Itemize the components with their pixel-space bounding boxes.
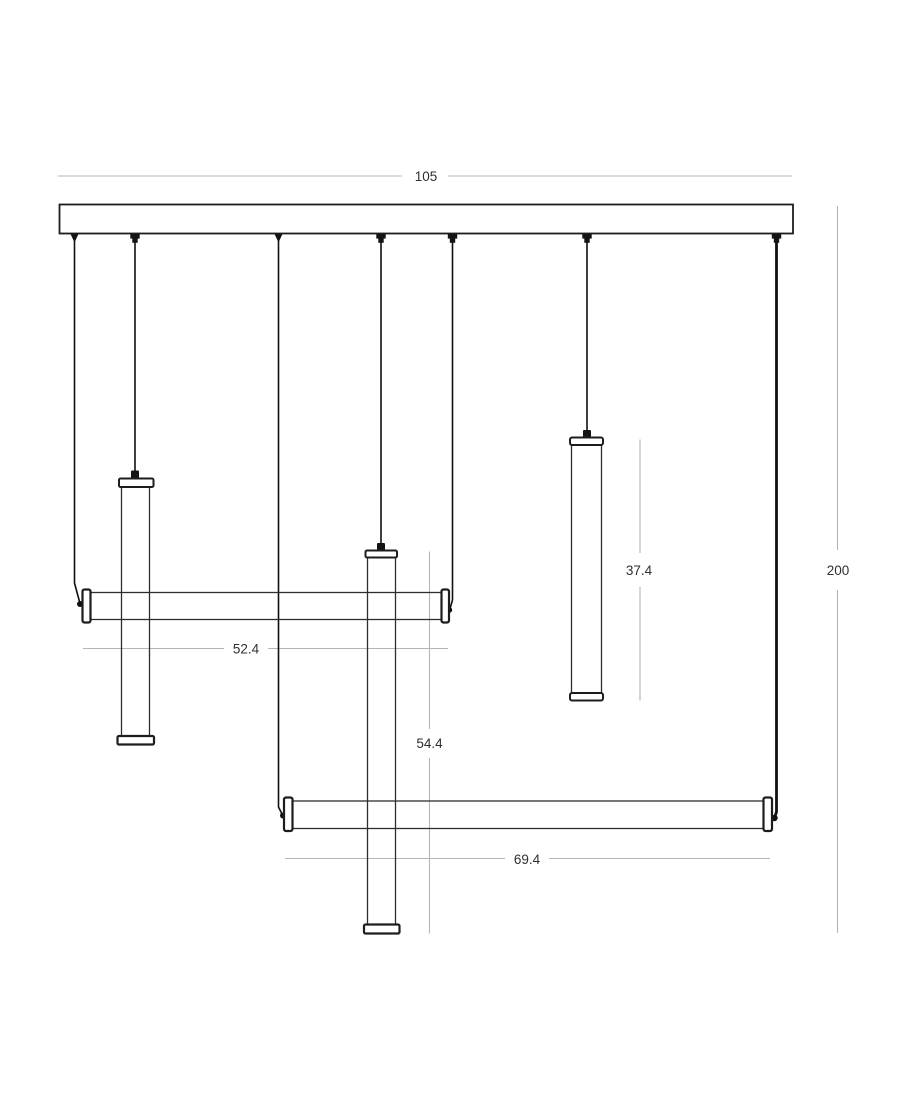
technical-drawing-canvas: 105 200 52.4 54.4 37.4 69.4: [0, 0, 900, 1100]
right-vertical-tube-top-cap: [570, 438, 603, 446]
left-vertical-tube: [118, 479, 155, 745]
suspension-cable-5: [450, 234, 453, 611]
ceiling-canopy-bar: [60, 205, 794, 234]
right-vertical-tube-bottom-cap: [570, 693, 603, 701]
dimension-canopy-length: 105: [58, 169, 792, 184]
lower-horizontal-tube-left-cap: [284, 798, 293, 832]
pendant-light-dimension-drawing: 105 200 52.4 54.4 37.4 69.4: [0, 0, 900, 1100]
lower-horizontal-tube-right-cap: [764, 798, 773, 832]
canopy-mount-connector-7: [772, 234, 781, 243]
canopy-mount-connector-4: [376, 234, 385, 243]
left-vertical-tube-top-cap: [119, 479, 154, 488]
dimension-overall-drop: 200: [827, 206, 850, 933]
dimension-middle-vertical-tube: 54.4: [416, 552, 443, 934]
dimension-lower-horizontal-tube: 69.4: [285, 852, 770, 867]
upper-horizontal-tube-body: [90, 593, 442, 620]
middle-vertical-tube: [364, 551, 400, 934]
canopy-cable-mounts: [71, 234, 782, 243]
upper-horizontal-tube-right-cap: [442, 590, 450, 623]
dim-label-overall-drop: 200: [827, 563, 850, 578]
dim-label-right-vertical-tube: 37.4: [626, 563, 653, 578]
left-vertical-tube-body: [122, 487, 150, 738]
dim-label-middle-vertical-tube: 54.4: [416, 736, 443, 751]
middle-vertical-tube-bottom-cap: [364, 925, 400, 934]
middle-vertical-tube-body: [368, 557, 396, 926]
dimension-right-vertical-tube: 37.4: [626, 440, 653, 701]
dim-label-upper-horizontal-tube: 52.4: [233, 642, 260, 657]
upper-horizontal-tube: [83, 590, 450, 623]
suspension-cable-7: [774, 234, 777, 821]
dim-label-canopy-length: 105: [415, 169, 438, 184]
canopy-mount-connector-1: [71, 234, 79, 243]
right-vertical-tube: [570, 438, 603, 701]
suspension-cables: [75, 234, 778, 822]
middle-vertical-tube-top-cap: [366, 551, 398, 558]
canopy-mount-connector-3: [275, 234, 283, 243]
lower-horizontal-tube-body: [292, 801, 764, 829]
right-vertical-tube-body: [572, 445, 602, 694]
dimension-upper-horizontal-tube: 52.4: [83, 642, 448, 657]
suspension-cable-1: [75, 234, 81, 604]
canopy-mount-connector-6: [582, 234, 591, 243]
canopy-mount-connector-2: [130, 234, 139, 243]
suspension-cable-3: [279, 234, 284, 817]
upper-horizontal-tube-left-cap: [83, 590, 91, 623]
dim-label-lower-horizontal-tube: 69.4: [514, 852, 541, 867]
lower-horizontal-tube: [284, 798, 772, 832]
left-vertical-tube-bottom-cap: [118, 736, 155, 745]
canopy-mount-connector-5: [448, 234, 457, 243]
